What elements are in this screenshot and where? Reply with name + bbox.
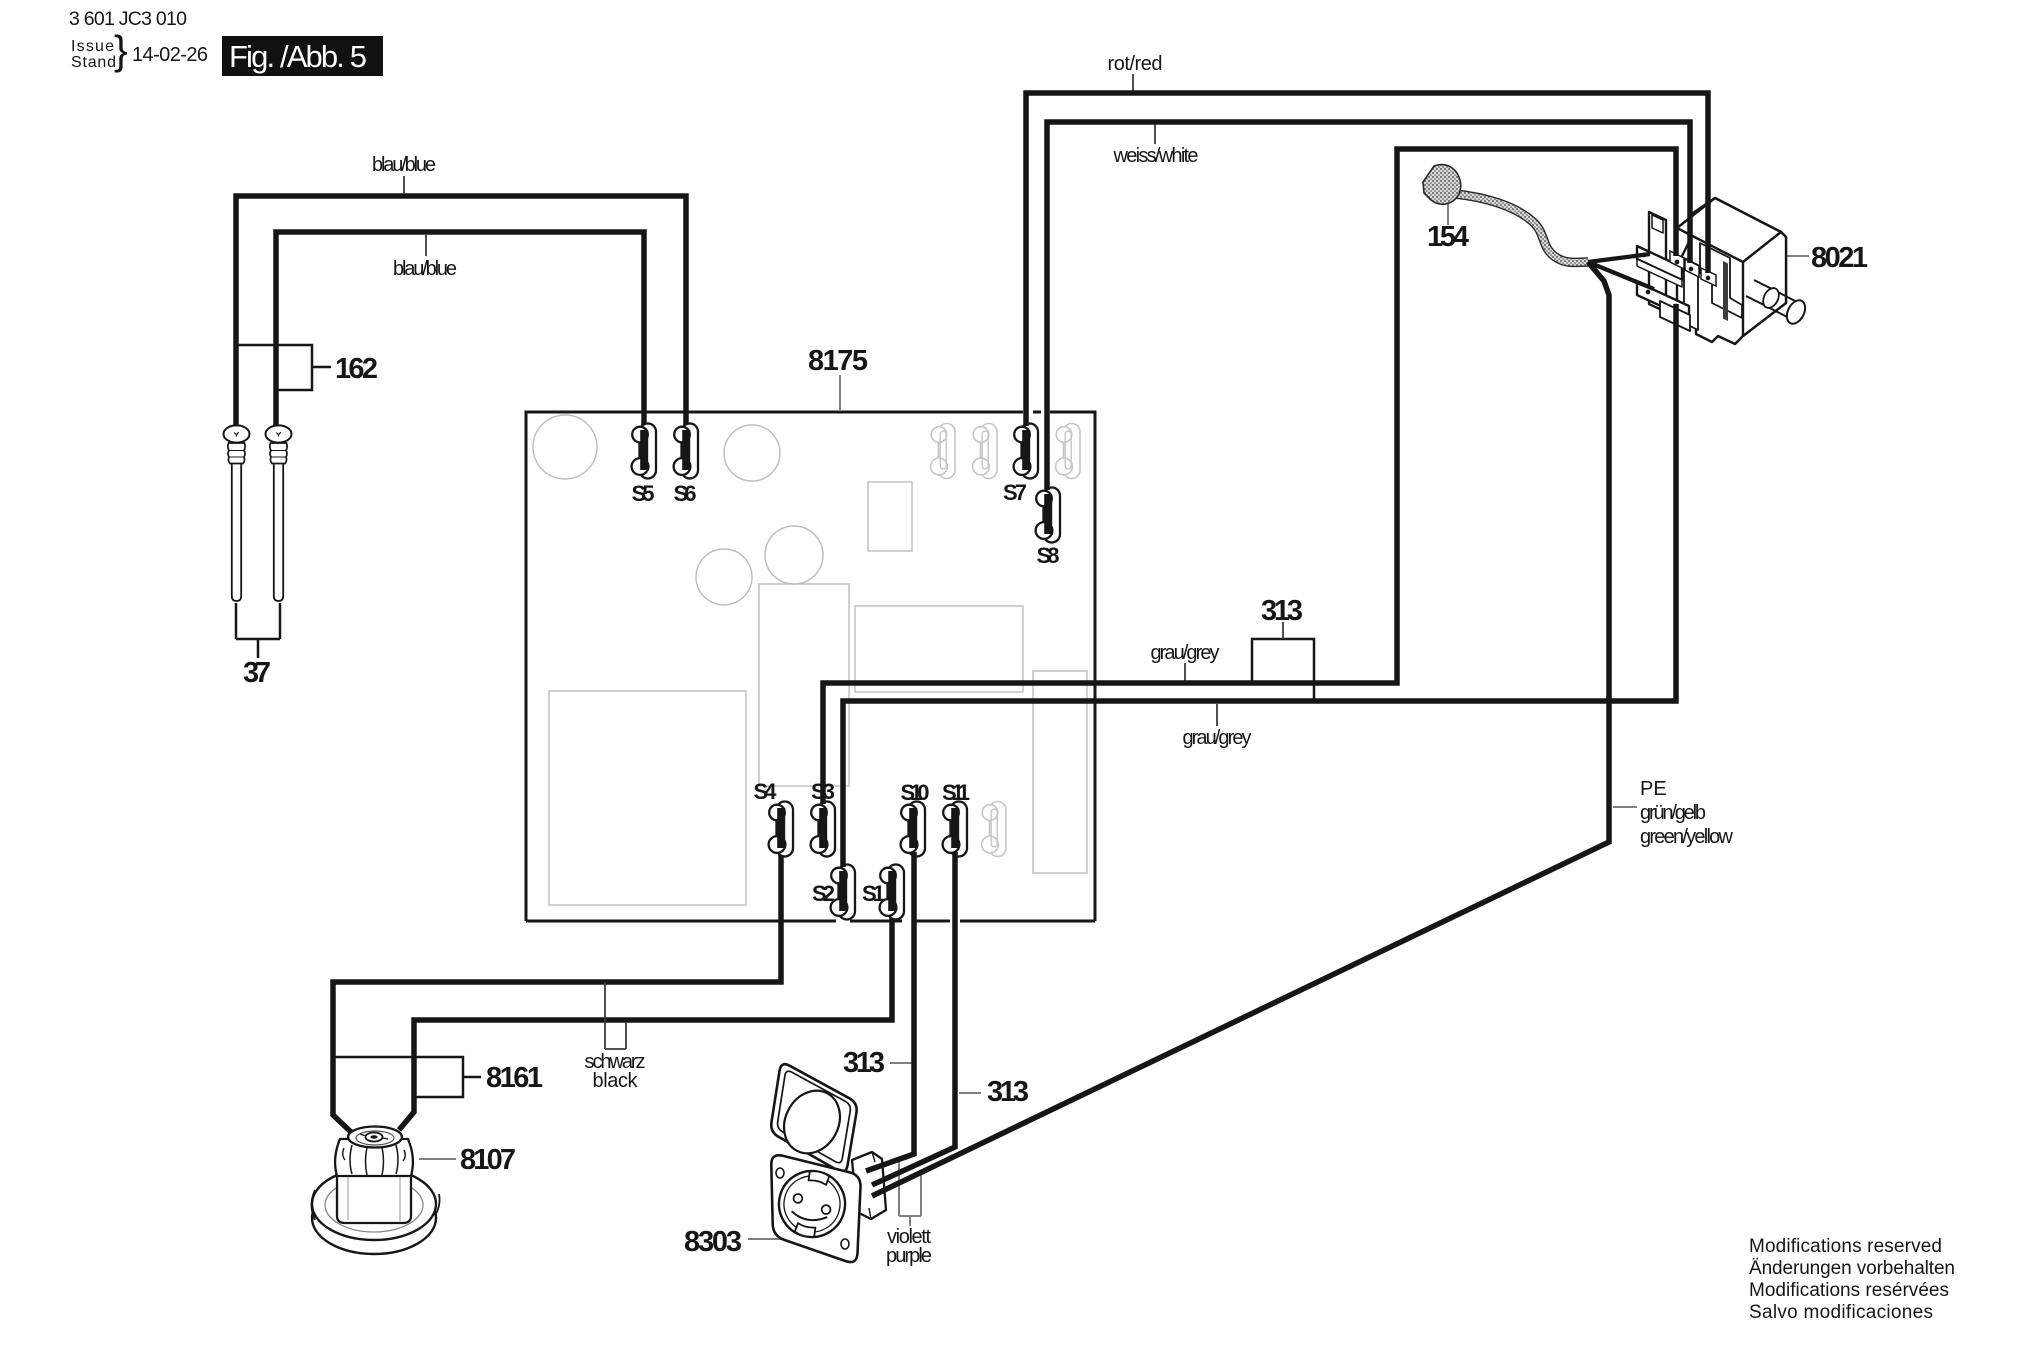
svg-text:S10: S10 <box>901 780 930 805</box>
svg-text:Stand: Stand <box>71 54 116 71</box>
svg-text:S7: S7 <box>1003 480 1027 505</box>
svg-text:8303: 8303 <box>684 1226 742 1258</box>
svg-text:313: 313 <box>987 1076 1029 1108</box>
svg-text:154: 154 <box>1427 221 1469 253</box>
svg-text:S1: S1 <box>862 881 885 906</box>
svg-text:grün/gelb: grün/gelb <box>1640 802 1706 824</box>
svg-text:blau/blue: blau/blue <box>393 258 457 280</box>
svg-text:S2: S2 <box>812 881 835 906</box>
svg-text:Modifications reserved: Modifications reserved <box>1749 1236 1942 1257</box>
svg-text:purple: purple <box>886 1245 932 1267</box>
svg-text:Issue: Issue <box>71 38 114 55</box>
svg-text:PE: PE <box>1640 778 1667 800</box>
svg-text:313: 313 <box>843 1047 885 1079</box>
svg-text:blau/blue: blau/blue <box>372 154 436 176</box>
svg-text:8021: 8021 <box>1811 242 1868 274</box>
svg-text:grau/grey: grau/grey <box>1151 642 1220 664</box>
svg-text:8175: 8175 <box>808 345 868 377</box>
svg-text:green/yellow: green/yellow <box>1640 826 1734 848</box>
svg-text:8107: 8107 <box>460 1144 516 1176</box>
svg-text:Modifications resérvées: Modifications resérvées <box>1749 1280 1949 1301</box>
svg-text:grau/grey: grau/grey <box>1183 727 1252 749</box>
svg-text:8161: 8161 <box>486 1062 543 1094</box>
svg-text:weiss/white: weiss/white <box>1113 145 1199 167</box>
svg-text:}: } <box>114 27 128 73</box>
svg-text:Fig. /Abb. 5: Fig. /Abb. 5 <box>229 39 367 74</box>
svg-text:S6: S6 <box>674 481 697 506</box>
svg-text:162: 162 <box>335 353 378 385</box>
svg-text:3 601 JC3 010: 3 601 JC3 010 <box>69 8 187 30</box>
svg-text:S4: S4 <box>754 779 778 804</box>
svg-text:black: black <box>593 1070 639 1092</box>
svg-text:37: 37 <box>243 657 271 689</box>
svg-text:S11: S11 <box>942 780 970 805</box>
svg-text:Änderungen vorbehalten: Änderungen vorbehalten <box>1749 1258 1955 1279</box>
svg-text:14-02-26: 14-02-26 <box>132 44 208 66</box>
svg-text:rot/red: rot/red <box>1108 53 1163 75</box>
svg-text:313: 313 <box>1261 595 1303 627</box>
svg-text:Salvo modificaciones: Salvo modificaciones <box>1749 1302 1933 1323</box>
svg-text:S5: S5 <box>632 481 655 506</box>
svg-text:S8: S8 <box>1037 543 1060 568</box>
svg-text:S3: S3 <box>811 779 835 804</box>
